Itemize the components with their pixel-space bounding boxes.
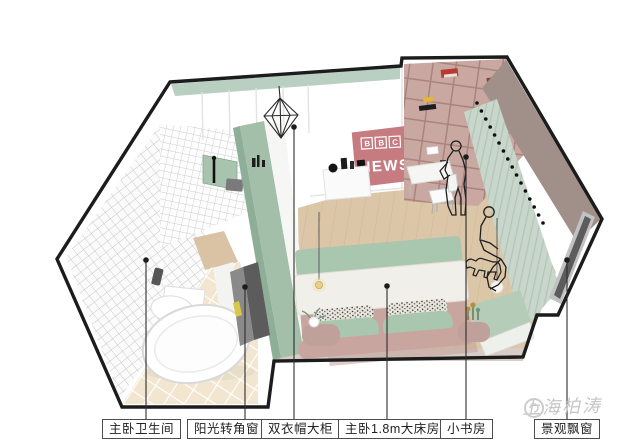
label-master-bathroom: 主卧卫生间 [102, 419, 181, 439]
bathroom-mirror [226, 178, 244, 191]
svg-text:C: C [392, 138, 398, 147]
bathroom-area [66, 122, 258, 404]
label-double-wardrobe: 双衣帽大柜 [261, 419, 340, 439]
label-scenic-bay-window: 景观飘窗 [534, 419, 600, 439]
svg-text:B: B [378, 138, 384, 147]
floorplan-canvas: B B C NEWS [0, 0, 641, 444]
label-sunny-corner-window: 阳光转角窗 [187, 419, 266, 439]
floorplan-illustration: B B C NEWS [0, 0, 641, 444]
svg-text:B: B [364, 139, 370, 148]
bed [290, 235, 478, 366]
label-small-study: 小书房 [440, 419, 493, 439]
label-master-bedroom-bed: 主卧1.8m大床房 [338, 419, 447, 439]
